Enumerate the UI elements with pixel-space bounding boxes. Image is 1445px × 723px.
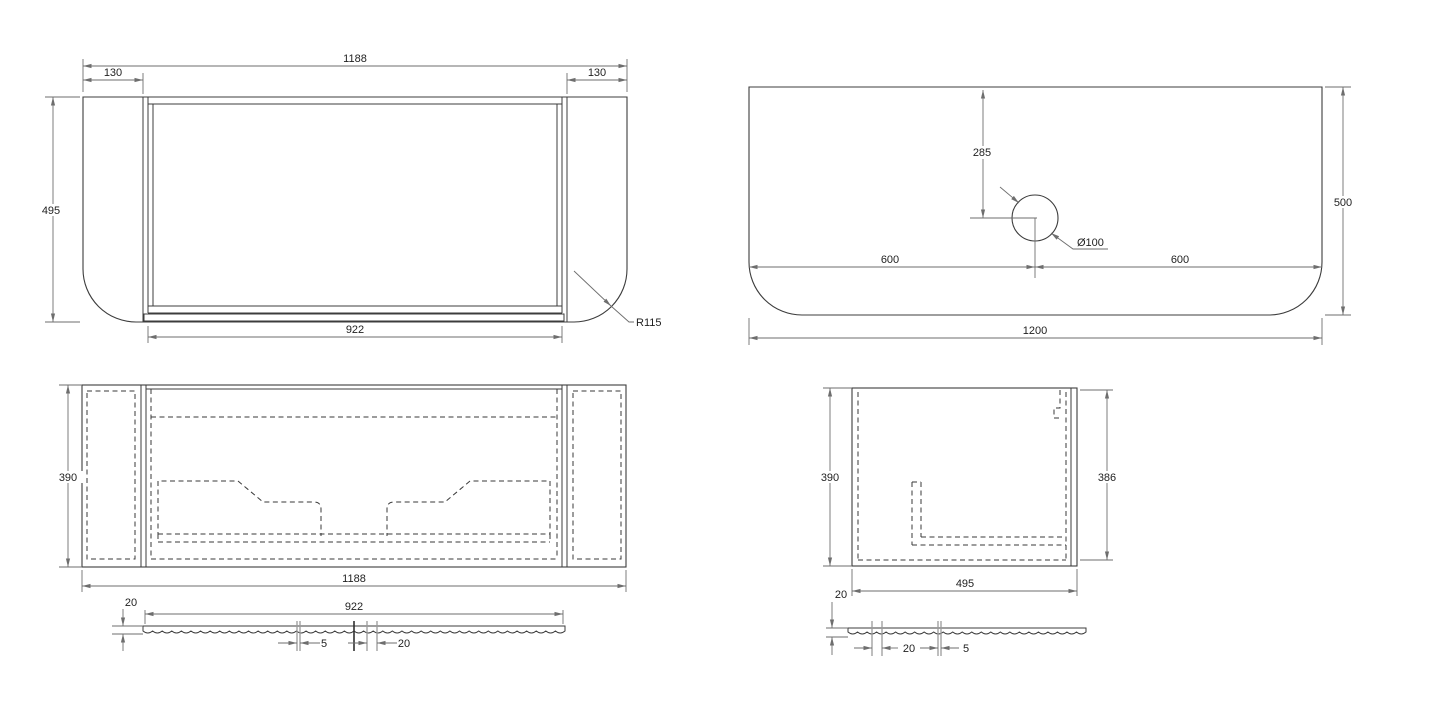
dim-plan-hole-offset: 285 <box>973 147 991 159</box>
dim-front-height: 495 <box>42 205 60 217</box>
dim-front-corner-radius: R115 <box>636 317 661 329</box>
dim-slat-front-width: 922 <box>345 601 363 613</box>
hidden-basin-right <box>387 481 550 537</box>
slat-side-dimensions: 20 20 5 <box>826 589 969 656</box>
plan-view: 285 Ø100 600 600 500 1200 <box>749 87 1358 345</box>
dim-slat-side-flute-width: 5 <box>963 643 969 655</box>
plan-outline <box>749 87 1322 315</box>
section-side-dimensions: 390 386 495 <box>815 388 1122 596</box>
radius-leader <box>574 271 611 306</box>
dim-section-side-width: 495 <box>956 578 974 590</box>
dim-plan-left-half: 600 <box>881 254 899 266</box>
hidden-notch <box>1054 390 1060 418</box>
dim-slat-front-flute-width: 5 <box>321 638 327 650</box>
dim-plan-total-width: 1200 <box>1023 325 1047 337</box>
hidden-panel-rect <box>87 391 135 559</box>
slat-side-outline <box>848 628 1086 634</box>
section-front-dimensions: 390 1188 <box>53 385 626 592</box>
dim-section-side-inner-depth: 386 <box>1098 472 1116 484</box>
section-side-hidden-lines <box>858 390 1066 560</box>
dim-section-side-outer-depth: 390 <box>821 472 839 484</box>
dim-front-left-panel: 130 <box>104 67 122 79</box>
dim-plan-depth: 500 <box>1334 197 1352 209</box>
dim-plan-hole-diameter: Ø100 <box>1077 237 1104 249</box>
dim-slat-side-flute-pitch: 20 <box>903 643 915 655</box>
dim-slat-front-flute-pitch: 20 <box>398 638 410 650</box>
front-view: 1188 130 130 495 922 R115 <box>37 53 661 343</box>
plan-dimensions: 285 Ø100 600 600 500 1200 <box>749 87 1358 345</box>
dim-section-front-total-width: 1188 <box>342 573 366 585</box>
front-outline <box>83 97 627 322</box>
dim-plan-right-half: 600 <box>1171 254 1189 266</box>
radius-leader-tail <box>611 306 634 322</box>
front-panel-dividers <box>143 97 567 322</box>
dim-front-opening-width: 922 <box>346 324 364 336</box>
slat-front-dimensions: 20 922 5 20 <box>112 597 563 651</box>
hidden-panel-rect <box>573 391 621 559</box>
section-side-outline <box>852 388 1077 566</box>
section-front-outline <box>82 385 626 567</box>
cad-drawing-canvas: 1188 130 130 495 922 R115 285 <box>0 0 1445 723</box>
dim-slat-front-thickness: 20 <box>125 597 137 609</box>
slat-profile-side: 20 20 5 <box>826 589 1086 656</box>
front-bottom-strip <box>144 314 564 321</box>
section-front-view: 390 1188 <box>53 385 626 592</box>
dim-slat-side-thickness: 20 <box>835 589 847 601</box>
dim-front-right-panel: 130 <box>588 67 606 79</box>
dim-front-total-width: 1188 <box>343 53 367 65</box>
front-opening-frame <box>148 104 562 313</box>
dim-section-front-depth: 390 <box>59 472 77 484</box>
section-front-hidden-lines <box>87 389 621 559</box>
hidden-basin-left <box>158 481 321 537</box>
slat-profile-front: 20 922 5 20 <box>112 597 565 651</box>
drawing-sheet: 1188 130 130 495 922 R115 285 <box>0 0 1445 723</box>
section-front-panel-dividers <box>141 385 567 567</box>
section-side-view: 390 386 495 <box>815 388 1122 596</box>
hole-dia-leader <box>1000 187 1019 203</box>
